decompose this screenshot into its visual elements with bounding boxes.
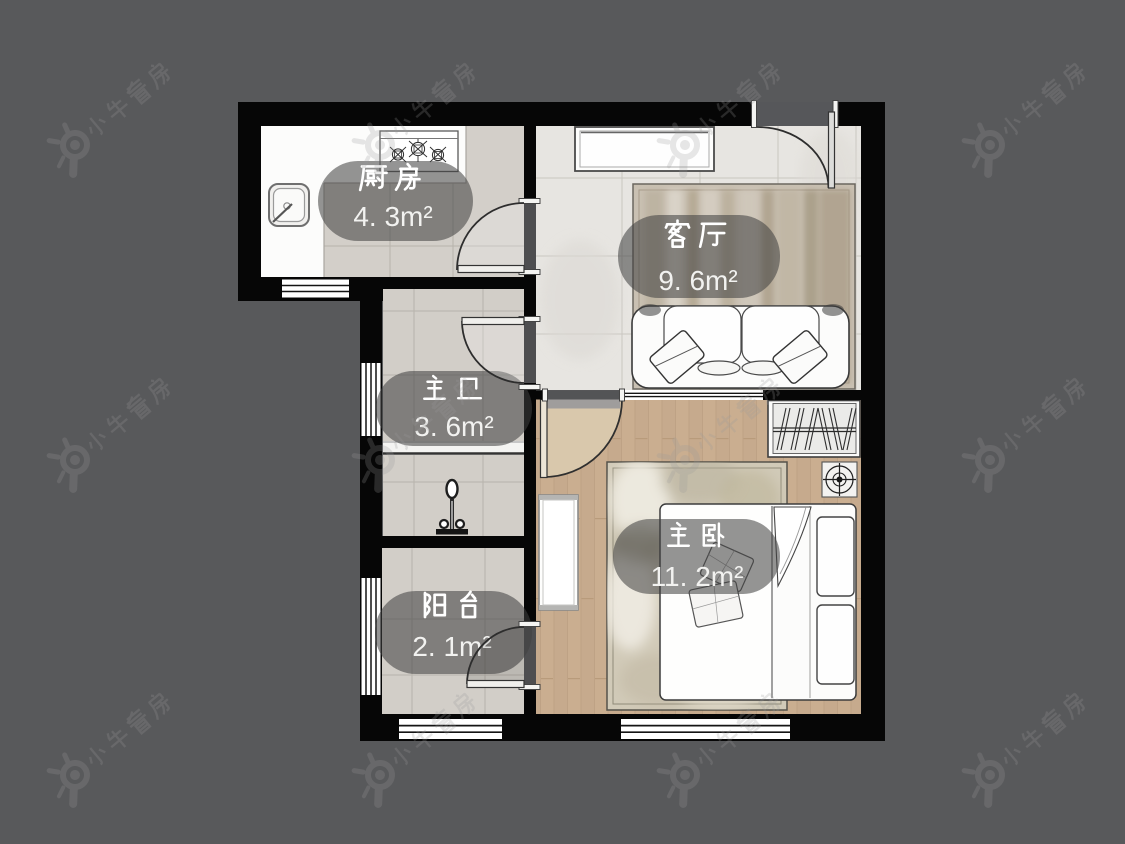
svg-text:9. 6m²: 9. 6m² bbox=[658, 265, 737, 296]
svg-text:11. 2m²: 11. 2m² bbox=[651, 561, 744, 592]
svg-text:4. 3m²: 4. 3m² bbox=[353, 201, 432, 232]
